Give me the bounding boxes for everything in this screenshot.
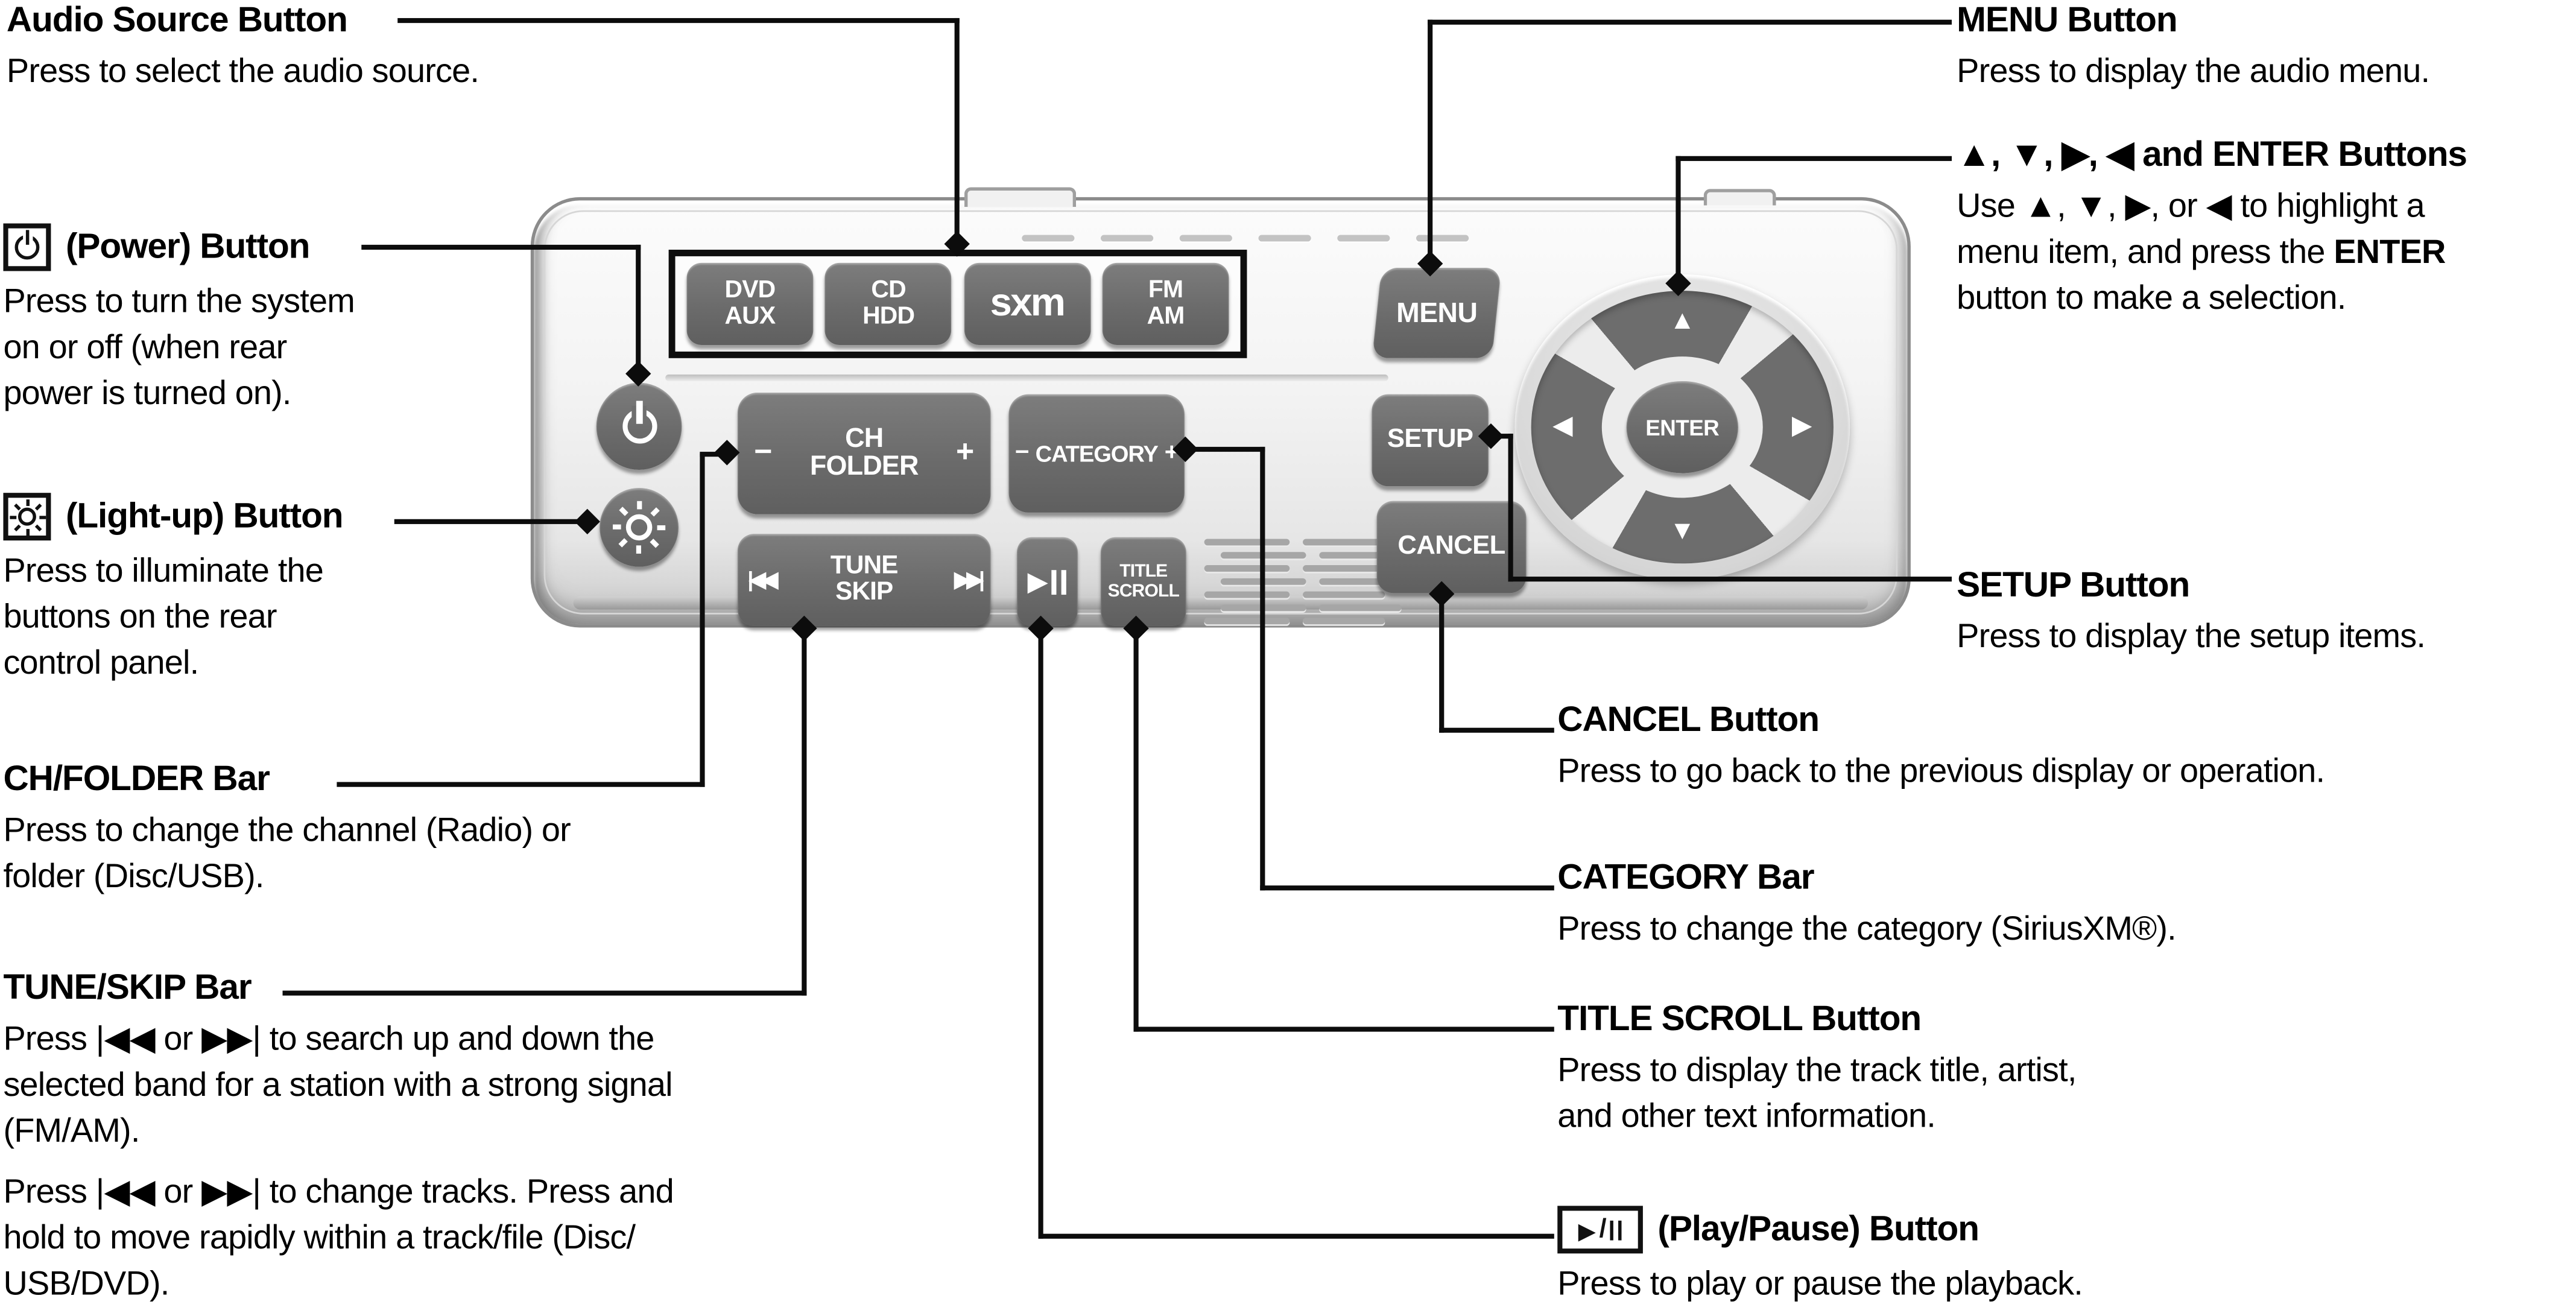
title-scroll-label-top: TITLE bbox=[1108, 561, 1179, 581]
callout-desc: Press to illuminate the bbox=[3, 549, 343, 595]
category-bar[interactable]: − CATEGORY + bbox=[1008, 394, 1184, 513]
light-up-button[interactable] bbox=[600, 488, 679, 567]
callout-line bbox=[1676, 156, 1952, 161]
callout-line bbox=[1439, 595, 1444, 733]
speaker-grille bbox=[1204, 539, 1402, 624]
callout-arrows-enter: ▲, ▼, ▶, ◀ and ENTER Buttons Use ▲, ▼, ▶… bbox=[1957, 134, 2467, 322]
callout-title-scroll: TITLE SCROLL Button Press to display the… bbox=[1557, 999, 2076, 1140]
callout-desc: power is turned on). bbox=[3, 372, 354, 417]
callout-desc: folder (Disc/USB). bbox=[3, 854, 571, 900]
callout-power: (Power) Button Press to turn the system … bbox=[3, 223, 354, 417]
power-icon-box bbox=[3, 223, 51, 271]
right-arrow-icon[interactable]: ▶ bbox=[1792, 414, 1812, 440]
light-bulb-icon bbox=[18, 508, 36, 526]
title-scroll-button[interactable]: TITLE SCROLL bbox=[1101, 537, 1186, 626]
callout-desc: Press to display the track title, artist… bbox=[1557, 1048, 2076, 1094]
callout-title: (Play/Pause) Button bbox=[1657, 1209, 1979, 1250]
power-icon bbox=[622, 409, 656, 443]
callout-desc: Press to go back to the previous display… bbox=[1557, 749, 2324, 795]
title-scroll-label-bottom: SCROLL bbox=[1108, 581, 1179, 602]
panel-groove bbox=[665, 375, 1388, 381]
callout-line bbox=[361, 245, 641, 250]
callout-line bbox=[1133, 629, 1138, 1031]
enter-label: ENTER bbox=[1645, 415, 1719, 440]
panel-top-notch bbox=[1704, 189, 1776, 205]
dvd-aux-label-top: DVD bbox=[725, 277, 776, 304]
skip-back-icon[interactable]: |◀◀ bbox=[747, 567, 774, 593]
pause-icon bbox=[1610, 1220, 1622, 1239]
menu-button[interactable]: MENU bbox=[1372, 268, 1502, 358]
setup-button[interactable]: SETUP bbox=[1372, 394, 1488, 487]
callout-title: ▲, ▼, ▶, ◀ and ENTER Buttons bbox=[1957, 134, 2467, 176]
callout-desc: Press to display the setup items. bbox=[1957, 615, 2425, 660]
ch-folder-minus[interactable]: − bbox=[754, 438, 772, 468]
vent-dash bbox=[1022, 235, 1074, 242]
callout-title: MENU Button bbox=[1957, 0, 2429, 41]
callout-line bbox=[1439, 728, 1554, 733]
callout-desc: Use ▲, ▼, ▶, or ◀ to highlight a bbox=[1957, 184, 2467, 230]
callout-desc: Press to turn the system bbox=[3, 279, 354, 325]
callout-line bbox=[1039, 1234, 1554, 1239]
callout-desc: menu item, and press the ENTER bbox=[1957, 230, 2467, 276]
callout-title: Audio Source Button bbox=[7, 0, 479, 41]
light-bulb-icon bbox=[626, 514, 653, 541]
cancel-button[interactable]: CANCEL bbox=[1377, 501, 1527, 593]
power-button[interactable] bbox=[597, 383, 682, 470]
play-icon: ▶ bbox=[1028, 569, 1046, 594]
fm-am-label-top: FM bbox=[1147, 277, 1185, 304]
callout-desc: Press to play or pause the playback. bbox=[1557, 1262, 2083, 1308]
power-icon bbox=[15, 235, 40, 260]
callout-line bbox=[700, 454, 704, 787]
ch-folder-bar[interactable]: − CH FOLDER + bbox=[738, 393, 990, 514]
slash-glyph: / bbox=[1599, 1215, 1606, 1244]
callout-line bbox=[397, 18, 960, 23]
callout-title: (Light-up) Button bbox=[66, 496, 343, 537]
callout-desc: Press to select the audio source. bbox=[7, 49, 479, 95]
dvd-aux-button[interactable]: DVD AUX bbox=[687, 263, 814, 345]
callout-line bbox=[1508, 434, 1513, 581]
play-pause-icon-box: ▶/ bbox=[1557, 1206, 1643, 1253]
callout-line bbox=[1428, 20, 1432, 263]
callout-line bbox=[1039, 629, 1043, 1239]
panel-top-notch bbox=[964, 188, 1076, 207]
callout-desc: Press to change the channel (Radio) or bbox=[3, 808, 571, 854]
callout-ch-folder: CH/FOLDER Bar Press to change the channe… bbox=[3, 759, 571, 900]
callout-menu: MENU Button Press to display the audio m… bbox=[1957, 0, 2429, 95]
cd-hdd-button[interactable]: CD HDD bbox=[825, 263, 952, 345]
callout-tune-skip: TUNE/SKIP Bar Press |◀◀ or ▶▶| to search… bbox=[3, 967, 673, 1308]
pause-icon bbox=[1051, 569, 1067, 594]
menu-label: MENU bbox=[1396, 297, 1477, 329]
vent-dash bbox=[1101, 235, 1153, 242]
callout-title: CANCEL Button bbox=[1557, 700, 2324, 741]
callout-title: SETUP Button bbox=[1957, 565, 2425, 606]
enter-button[interactable]: ENTER bbox=[1627, 381, 1738, 473]
callout-desc: Press |◀◀ or ▶▶| to search up and down t… bbox=[3, 1017, 673, 1063]
vent-dash bbox=[1259, 235, 1311, 242]
callout-line bbox=[1260, 447, 1265, 890]
callout-desc: buttons on the rear bbox=[3, 595, 343, 641]
callout-desc: USB/DVD). bbox=[3, 1262, 673, 1308]
down-arrow-icon[interactable]: ▼ bbox=[1669, 519, 1695, 546]
vent-dash bbox=[1337, 235, 1390, 242]
callout-desc: control panel. bbox=[3, 641, 343, 686]
callout-line bbox=[1133, 1027, 1554, 1031]
callout-audio-source: Audio Source Button Press to select the … bbox=[7, 0, 479, 95]
light-icon-box bbox=[3, 493, 51, 540]
ch-folder-label-top: CH bbox=[810, 425, 919, 453]
play-icon: ▶ bbox=[1578, 1218, 1596, 1241]
callout-desc: button to make a selection. bbox=[1957, 276, 2467, 322]
cd-hdd-label-bottom: HDD bbox=[862, 304, 914, 331]
callout-desc: Press to change the category (SiriusXM®)… bbox=[1557, 907, 2176, 953]
fm-am-label-bottom: AM bbox=[1147, 304, 1185, 331]
fm-am-button[interactable]: FM AM bbox=[1103, 263, 1229, 345]
ch-folder-plus[interactable]: + bbox=[956, 438, 974, 468]
category-minus[interactable]: − bbox=[1015, 438, 1029, 468]
play-pause-button[interactable]: ▶ bbox=[1017, 537, 1078, 626]
directional-pad: ▲ ▼ ◀ ▶ ENTER bbox=[1514, 274, 1850, 580]
callout-line bbox=[802, 629, 806, 995]
callout-category: CATEGORY Bar Press to change the categor… bbox=[1557, 858, 2176, 953]
callout-play-pause: ▶/ (Play/Pause) Button Press to play or … bbox=[1557, 1206, 2083, 1308]
callout-line bbox=[394, 519, 585, 524]
callout-line bbox=[1508, 577, 1952, 581]
cancel-label: CANCEL bbox=[1397, 533, 1505, 562]
callout-title: CATEGORY Bar bbox=[1557, 858, 2176, 899]
callout-setup: SETUP Button Press to display the setup … bbox=[1957, 565, 2425, 660]
callout-desc: hold to move rapidly within a track/file… bbox=[3, 1216, 673, 1262]
callout-line bbox=[1676, 156, 1680, 284]
callout-line bbox=[955, 18, 960, 243]
callout-light-up: (Light-up) Button Press to illuminate th… bbox=[3, 493, 343, 686]
tune-label: TUNE bbox=[831, 553, 898, 580]
callout-desc: Press to display the audio menu. bbox=[1957, 49, 2429, 95]
callout-line bbox=[636, 245, 641, 373]
manual-diagram-page: DVD AUX CD HDD sxm FM AM bbox=[0, 0, 2576, 1316]
callout-line bbox=[1188, 447, 1265, 452]
callout-desc: Press |◀◀ or ▶▶| to change tracks. Press… bbox=[3, 1169, 673, 1215]
skip-forward-icon[interactable]: ▶▶| bbox=[954, 567, 981, 593]
dpad-wedges[interactable]: ▲ ▼ ◀ ▶ ENTER bbox=[1531, 291, 1834, 563]
up-arrow-icon[interactable]: ▲ bbox=[1669, 309, 1695, 335]
skip-label: SKIP bbox=[831, 580, 898, 607]
callout-desc: on or off (when rear bbox=[3, 325, 354, 371]
ch-folder-label-bottom: FOLDER bbox=[810, 454, 919, 481]
callout-title: TITLE SCROLL Button bbox=[1557, 999, 2076, 1040]
callout-desc: (FM/AM). bbox=[3, 1109, 673, 1155]
audio-source-button-group: DVD AUX CD HDD sxm FM AM bbox=[669, 250, 1247, 358]
rear-control-panel: DVD AUX CD HDD sxm FM AM bbox=[531, 197, 1911, 628]
callout-title: (Power) Button bbox=[66, 227, 309, 268]
cd-hdd-label-top: CD bbox=[862, 277, 914, 304]
left-arrow-icon[interactable]: ◀ bbox=[1552, 414, 1573, 440]
category-label: CATEGORY bbox=[1036, 440, 1158, 467]
vent-dash bbox=[1416, 235, 1469, 242]
tune-skip-bar[interactable]: |◀◀ TUNE SKIP ▶▶| bbox=[738, 534, 990, 626]
callout-title: TUNE/SKIP Bar bbox=[3, 967, 673, 1008]
setup-label: SETUP bbox=[1387, 425, 1473, 455]
sxm-button[interactable]: sxm bbox=[964, 263, 1090, 345]
vent-dash bbox=[1180, 235, 1232, 242]
dvd-aux-label-bottom: AUX bbox=[725, 304, 776, 331]
callout-desc: selected band for a station with a stron… bbox=[3, 1063, 673, 1109]
callout-title: CH/FOLDER Bar bbox=[3, 759, 571, 800]
callout-cancel: CANCEL Button Press to go back to the pr… bbox=[1557, 700, 2324, 795]
callout-desc: and other text information. bbox=[1557, 1094, 2076, 1140]
callout-line bbox=[1428, 20, 1952, 25]
sxm-logo: sxm bbox=[990, 284, 1064, 323]
callout-line bbox=[1260, 885, 1554, 890]
